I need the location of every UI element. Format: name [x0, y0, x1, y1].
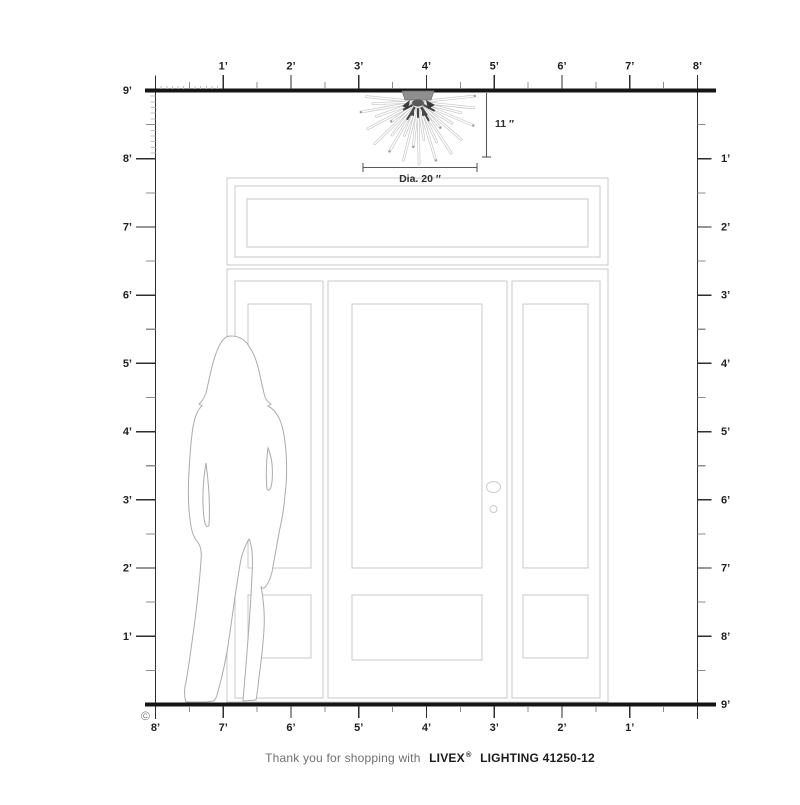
ruler-label: 5’	[721, 426, 730, 438]
ruler-label: 3’	[354, 61, 363, 73]
ruler-label: 9’	[123, 85, 132, 97]
ruler-label: 1’	[625, 722, 634, 734]
ruler-label: 7’	[123, 221, 132, 233]
fixture-hub	[412, 99, 424, 106]
door-knob-handle	[487, 482, 501, 493]
door-knob	[487, 482, 501, 513]
ruler-label: 7’	[625, 61, 634, 73]
ruler-label: 5’	[490, 61, 499, 73]
ruler-label: 4’	[721, 358, 730, 370]
ruler-label: 2’	[721, 221, 730, 233]
ruler-label: 6’	[721, 494, 730, 506]
door-leaf-frame	[328, 281, 507, 698]
fixture-height-dimension: 11 ″	[482, 93, 514, 157]
fixture-diameter-dimension: Dia. 20 ″	[363, 163, 477, 185]
diagram-canvas: 1’2’3’4’5’6’7’8’ 9’8’7’6’5’4’3’2’1’ 1’2’…	[0, 0, 800, 800]
transom-outer-frame	[227, 178, 608, 265]
ruler-label: 5’	[123, 358, 132, 370]
ruler-label: 7’	[219, 722, 228, 734]
ruler-label: 6’	[123, 290, 132, 302]
ruler-bottom: 8’7’6’5’4’3’2’1’	[151, 706, 664, 734]
door-lower-panel	[352, 595, 482, 660]
fixture-rod-tip	[474, 95, 476, 97]
transom-inner-frame	[235, 186, 600, 257]
fixture-rod-tip	[412, 146, 414, 148]
ruler-label: 8’	[123, 153, 132, 165]
ruler-top: 1’2’3’4’5’6’7’8’	[161, 61, 702, 90]
ruler-label: 3’	[490, 722, 499, 734]
transom-window	[227, 178, 608, 265]
fixture-rod-tip	[360, 111, 362, 113]
ruler-label: 3’	[721, 290, 730, 302]
sidelight-frame	[512, 281, 600, 698]
copyright-symbol: ©	[141, 709, 150, 723]
transom-glass	[247, 199, 588, 247]
ceiling-fixture	[360, 91, 476, 164]
ruler-label: 5’	[354, 722, 363, 734]
ruler-label: 2’	[557, 722, 566, 734]
person-silhouette	[185, 336, 287, 702]
ruler-label: 2’	[286, 61, 295, 73]
ruler-label: 1’	[721, 153, 730, 165]
fixture-rod-tip	[472, 124, 474, 126]
ruler-label: 4’	[123, 426, 132, 438]
fixture-rod-tip	[390, 120, 392, 122]
door-upper-panel	[352, 304, 482, 568]
fixture-rod-tip	[439, 127, 441, 129]
ruler-label: 4’	[422, 61, 431, 73]
ruler-label: 4’	[422, 722, 431, 734]
registered-trademark-symbol: ®	[466, 750, 472, 759]
diameter-dimension-label: Dia. 20 ″	[399, 173, 441, 185]
ruler-label: 8’	[721, 631, 730, 643]
fixture-rod-tip	[435, 159, 437, 161]
ruler-label: 3’	[123, 494, 132, 506]
ruler-label: 8’	[151, 722, 160, 734]
door-main-leaf	[328, 281, 507, 698]
fixture-canopy	[402, 91, 434, 100]
ruler-label: 6’	[557, 61, 566, 73]
brand-name: LIVEX	[429, 751, 465, 765]
footer-caption: Thank you for shopping with LIVEX® LIGHT…	[60, 750, 800, 765]
ruler-label: 7’	[721, 563, 730, 575]
footer-thanks-text: Thank you for shopping with	[265, 751, 421, 765]
sidelight-upper-panel	[523, 304, 588, 568]
door-knob-keyhole	[490, 506, 497, 513]
product-number: LIGHTING 41250-12	[480, 751, 595, 765]
dimension-diagram: 1’2’3’4’5’6’7’8’ 9’8’7’6’5’4’3’2’1’ 1’2’…	[0, 0, 800, 800]
sidelight-lower-panel	[523, 595, 588, 658]
door-right-sidelight	[512, 281, 600, 698]
ruler-label: 8’	[693, 61, 702, 73]
ruler-label: 9’	[721, 699, 730, 711]
ruler-label: 1’	[123, 631, 132, 643]
fixture-rod-tip	[388, 150, 390, 152]
height-dimension-label: 11 ″	[495, 118, 514, 130]
ruler-left: 9’8’7’6’5’4’3’2’1’	[123, 85, 156, 670]
ruler-right: 1’2’3’4’5’6’7’8’9’	[698, 125, 731, 711]
ruler-label: 1’	[219, 61, 228, 73]
ruler-label: 6’	[286, 722, 295, 734]
person-outline	[185, 336, 287, 702]
ruler-label: 2’	[123, 563, 132, 575]
